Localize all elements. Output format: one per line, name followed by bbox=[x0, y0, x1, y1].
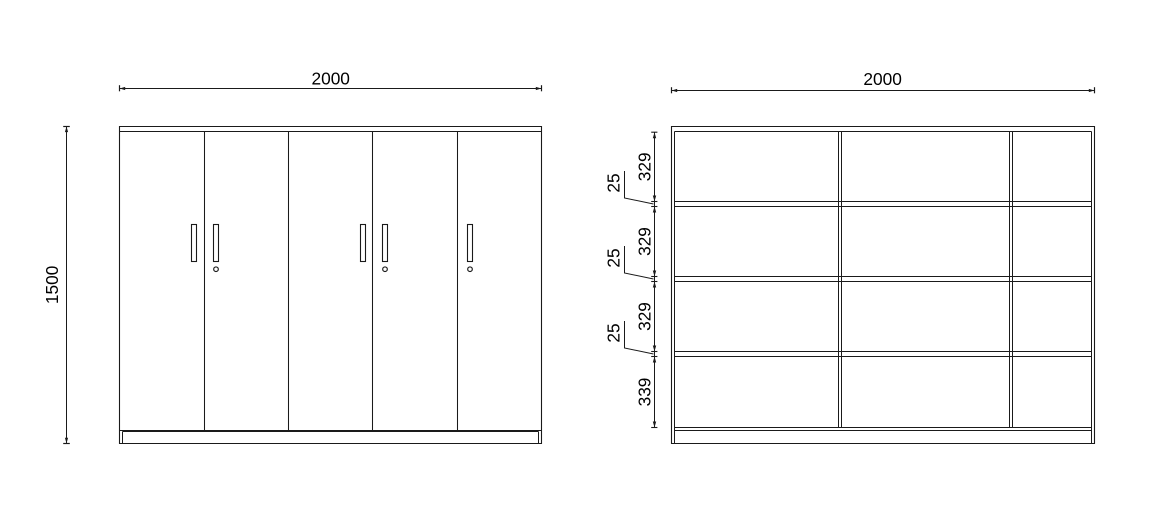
svg-text:329: 329 bbox=[634, 227, 654, 256]
svg-text:329: 329 bbox=[634, 152, 654, 181]
svg-text:329: 329 bbox=[634, 302, 654, 331]
svg-text:339: 339 bbox=[634, 378, 654, 407]
svg-text:2000: 2000 bbox=[863, 69, 901, 89]
svg-text:25: 25 bbox=[603, 173, 623, 192]
svg-text:2000: 2000 bbox=[311, 69, 349, 89]
svg-text:1500: 1500 bbox=[42, 266, 62, 304]
svg-text:25: 25 bbox=[603, 248, 623, 267]
svg-text:25: 25 bbox=[603, 323, 623, 342]
